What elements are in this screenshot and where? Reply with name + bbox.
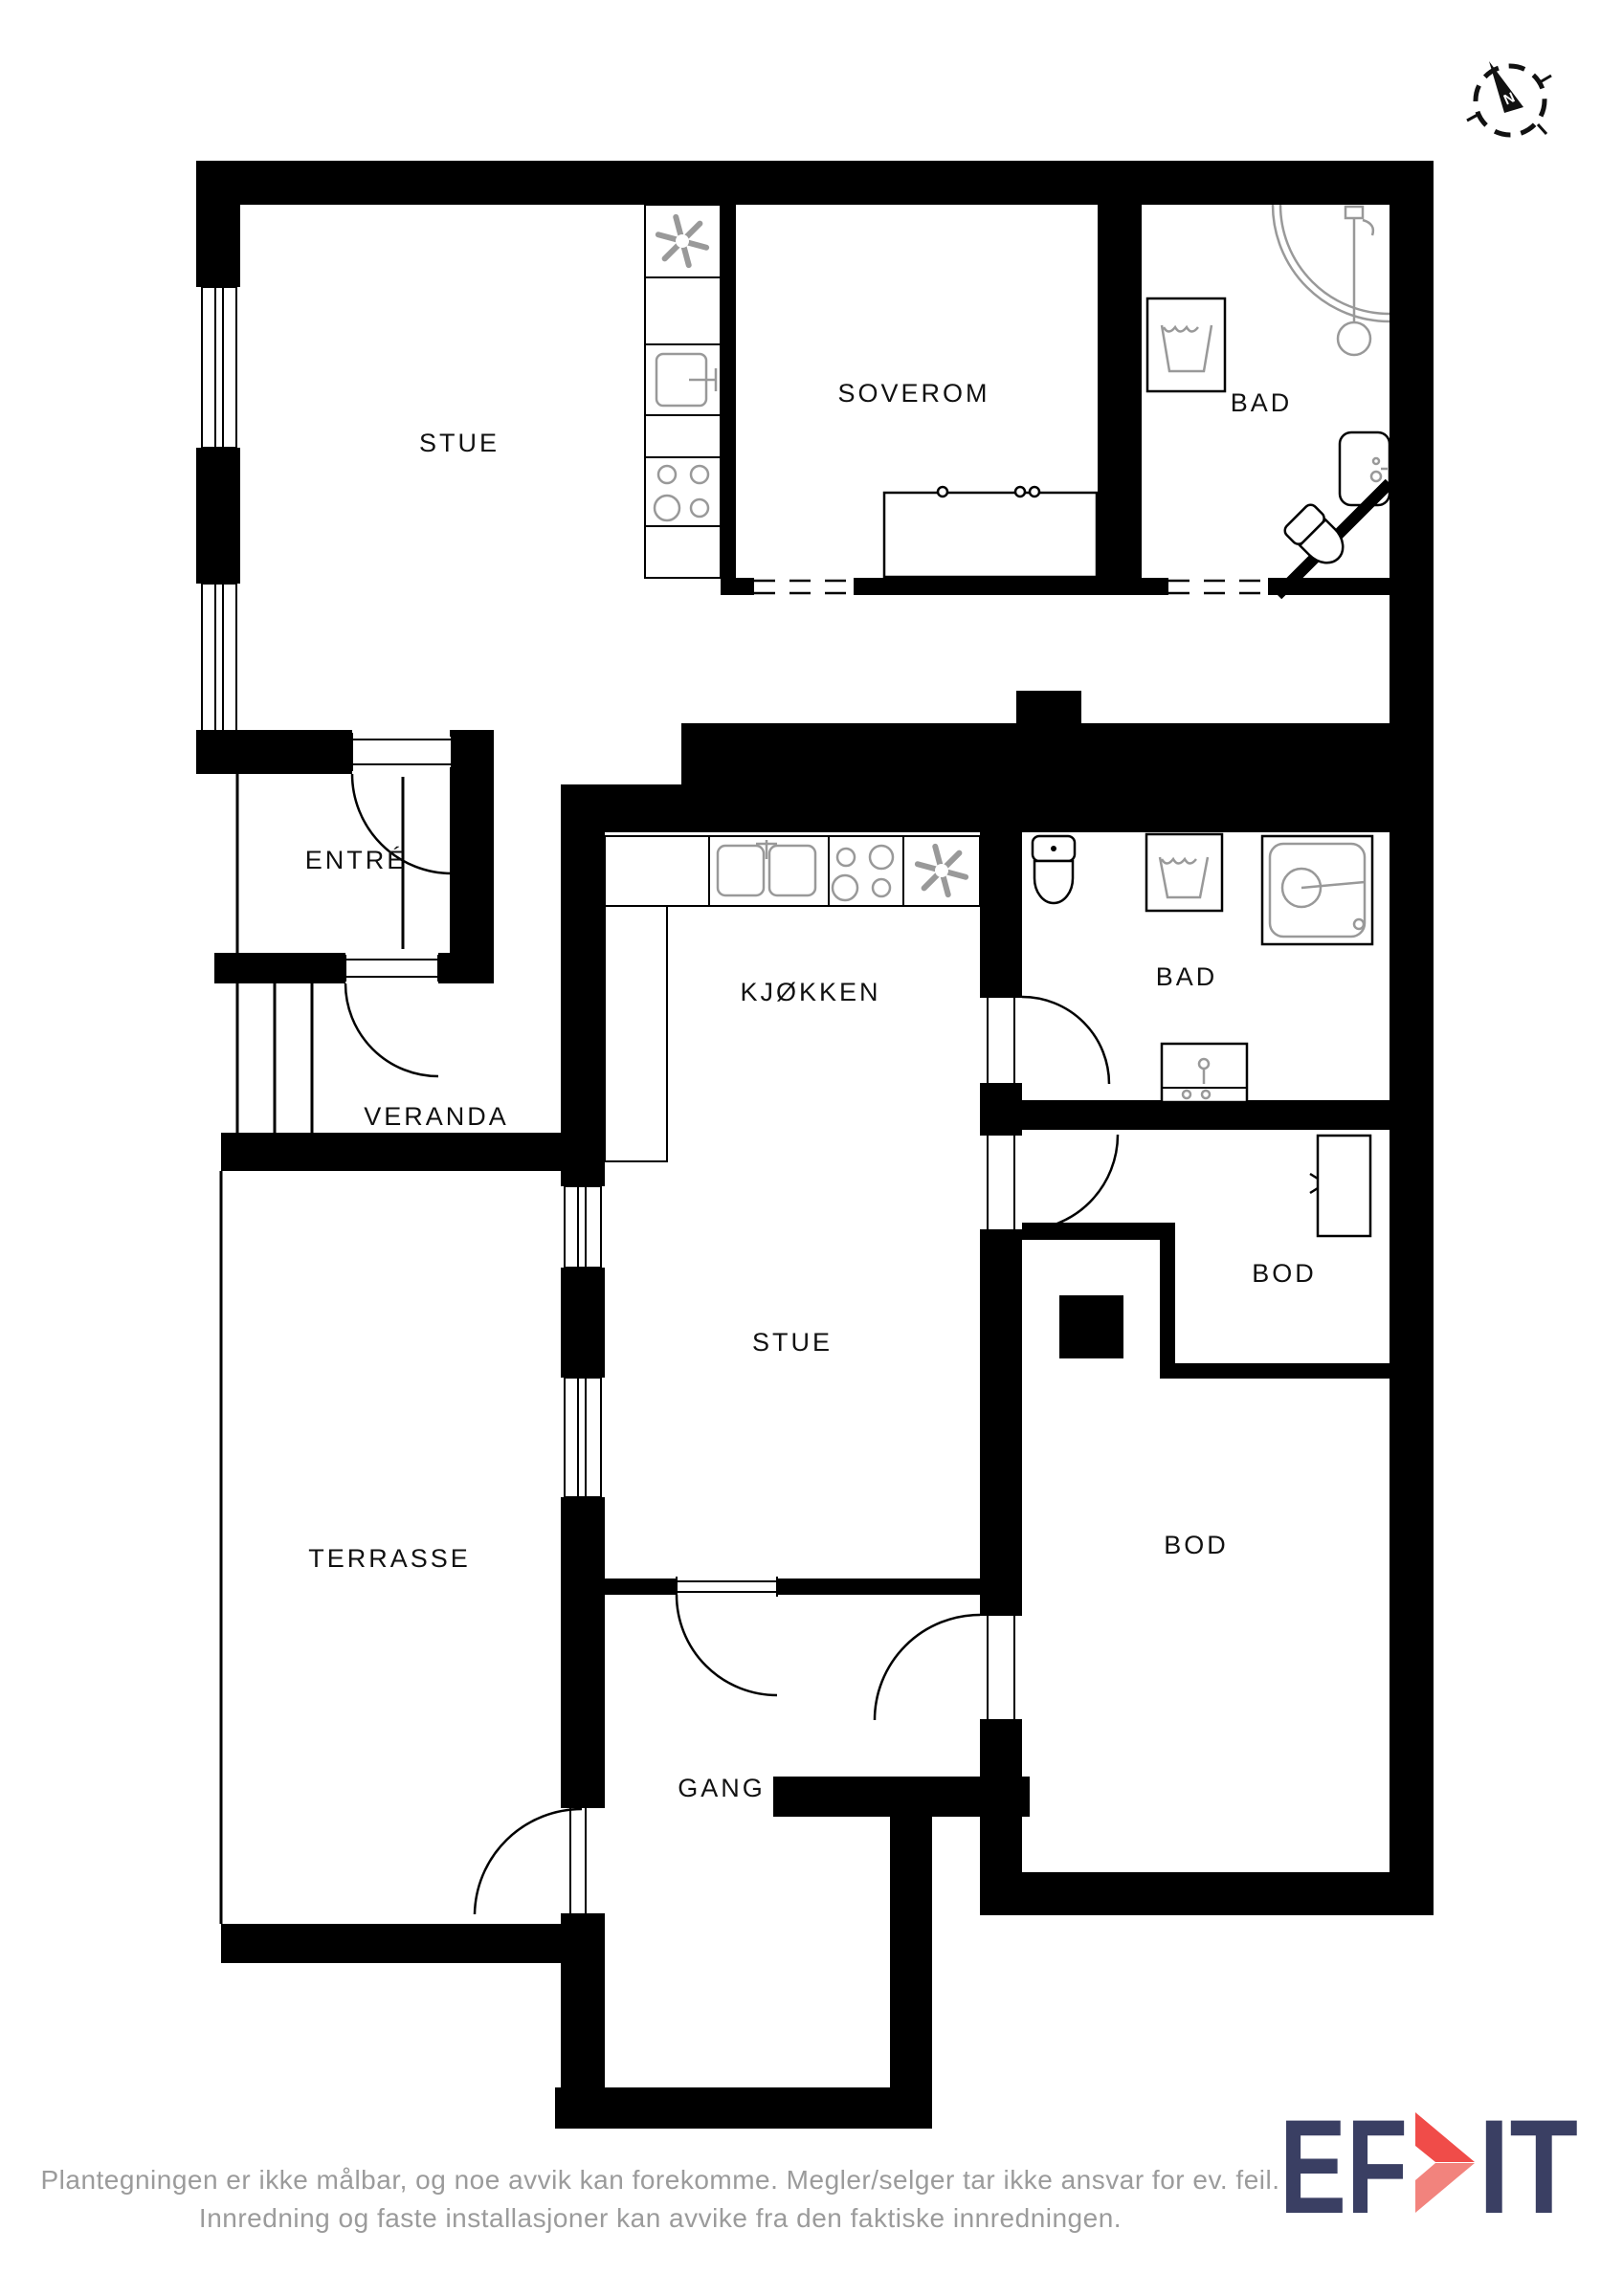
room-label-bod-large: BOD <box>1164 1531 1229 1559</box>
door-stue2-gang <box>677 1577 777 1695</box>
fridge-fan-icon <box>918 847 966 894</box>
fridge-fan-icon <box>658 217 706 265</box>
door-bod-large <box>875 1615 1022 1720</box>
double-sink-icon <box>718 840 815 895</box>
logo-chevron-bottom <box>1415 2163 1475 2213</box>
room-label-bad-mid: BAD <box>1156 962 1218 991</box>
door-bad2 <box>980 997 1109 1084</box>
footer-line-2: Innredning og faste installasjoner kan a… <box>199 2203 1122 2233</box>
counter-l <box>605 906 667 1161</box>
shaft-square <box>1059 1295 1123 1358</box>
door-entre-veranda <box>345 955 438 1076</box>
room-label-veranda: VERANDA <box>364 1102 509 1131</box>
window-icon <box>565 1378 601 1497</box>
toilet-icon <box>1033 836 1075 903</box>
room-label-bod-small: BOD <box>1252 1259 1317 1288</box>
room-label-kjokken: KJØKKEN <box>740 978 880 1006</box>
room-label-soverom: SOVEROM <box>837 379 989 408</box>
room-label-stue-mid: STUE <box>752 1328 833 1357</box>
door-bod-small <box>980 1135 1118 1230</box>
stove-icon <box>833 846 893 900</box>
room-label-terrasse: TERRASSE <box>308 1544 471 1573</box>
shower-corner-icon <box>1273 205 1390 355</box>
footer-disclaimer: Plantegningen er ikke målbar, og noe avv… <box>40 2165 1279 2233</box>
washing-machine-icon <box>1146 834 1222 911</box>
logo-text-it: IT <box>1478 2091 1578 2241</box>
washing-machine-icon <box>1147 298 1225 391</box>
door-terrasse <box>475 1807 605 1914</box>
sink-icon <box>656 354 716 406</box>
room-label-bad-top: BAD <box>1231 388 1293 417</box>
logo-text-ef: EF <box>1279 2091 1408 2241</box>
toilet-icon <box>1282 502 1353 573</box>
shower-icon <box>1262 836 1372 944</box>
window-icon <box>565 1186 601 1268</box>
walls <box>196 161 1434 2129</box>
thin-boundaries <box>221 774 403 1924</box>
efkt-logo: EF IT <box>1279 2091 1578 2241</box>
room-label-entre: ENTRÉ <box>305 846 408 874</box>
floorplan-page: STUE SOVEROM BAD ENTRÉ VERANDA KJØKKEN B… <box>0 0 1623 2296</box>
compass-icon: N <box>1467 61 1551 135</box>
stove-icon <box>655 466 708 520</box>
bed-icon <box>884 487 1097 577</box>
kitchen-column <box>645 205 721 578</box>
window-icon <box>202 287 236 448</box>
logo-chevron-top <box>1415 2112 1475 2162</box>
room-label-gang: GANG <box>678 1774 766 1802</box>
window-icon <box>202 584 236 748</box>
vanity-sink-icon <box>1162 1044 1247 1102</box>
footer-line-1: Plantegningen er ikke målbar, og noe avv… <box>40 2165 1279 2195</box>
floorplan-drawing: STUE SOVEROM BAD ENTRÉ VERANDA KJØKKEN B… <box>0 0 1623 2296</box>
room-label-stue-top: STUE <box>419 429 500 457</box>
cabinet-icon <box>1310 1136 1370 1236</box>
